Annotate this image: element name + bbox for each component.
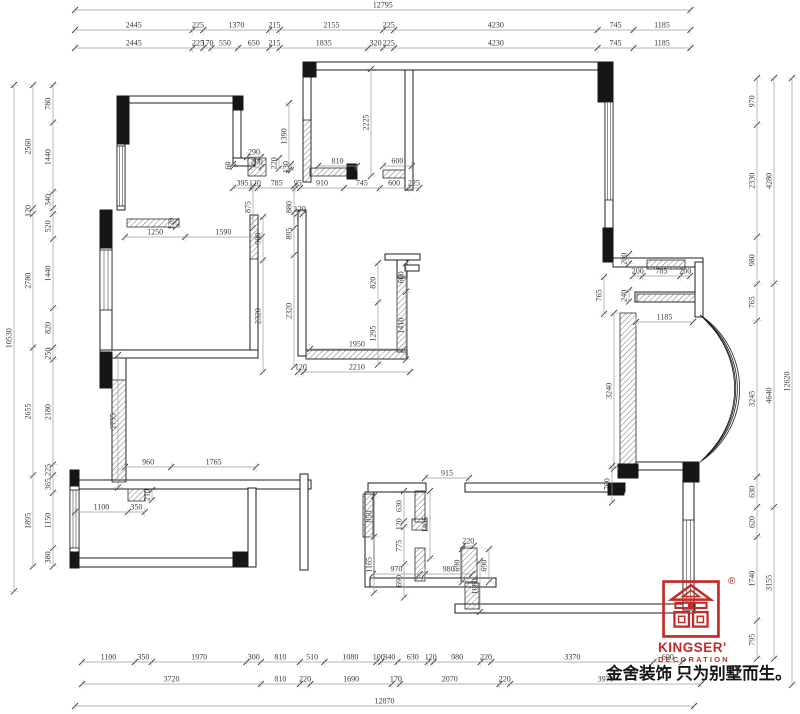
dim-label: 850	[365, 510, 374, 522]
dim-label: 910	[316, 179, 328, 188]
dim-label: 510	[306, 653, 318, 662]
dim-label: 765	[595, 289, 604, 301]
dim-label: 1100	[94, 503, 110, 512]
registered-trademark: ®	[728, 576, 735, 587]
dim-label: 60	[224, 161, 233, 169]
dim-label: 550	[219, 39, 231, 48]
dim-label: 1895	[24, 513, 33, 529]
dim-label: 200	[620, 253, 629, 265]
dim-label: 2330	[748, 173, 757, 189]
brand-name: KINGSER'	[658, 640, 744, 655]
dim-label: 240	[620, 290, 629, 302]
dim-label: 3370	[564, 653, 580, 662]
kingser-logo-mark: ®	[662, 580, 720, 638]
dim-label: 600	[397, 271, 406, 283]
dim-label: 765	[748, 296, 757, 308]
dim-label: 785	[655, 267, 667, 276]
dim-label: 745	[610, 39, 622, 48]
dim-label: 225	[192, 21, 204, 30]
dim-label: 875	[244, 201, 253, 213]
dim-label: 4280	[765, 173, 774, 189]
dim-label: 2320	[285, 303, 294, 319]
dim-label: 900	[254, 233, 263, 245]
dim-label: 3245	[748, 391, 757, 407]
dim-label: 120	[395, 518, 404, 530]
dim-label: 1440	[44, 266, 53, 282]
dim-label: 880	[285, 201, 294, 213]
dim-label: 2180	[44, 404, 53, 420]
dim-label: 1410	[397, 318, 406, 334]
dim-label: 12795	[373, 1, 393, 10]
dim-label: 12870	[375, 697, 395, 706]
dim-label: 1440	[44, 149, 53, 165]
dim-label: 1185	[654, 39, 670, 48]
dim-label: 200	[251, 158, 263, 167]
dim-label: 225	[383, 39, 395, 48]
dim-label: 690	[480, 560, 489, 572]
dim-label: 220	[462, 537, 474, 546]
dim-label: 690	[453, 560, 462, 572]
dim-label: 1835	[316, 39, 332, 48]
dim-label: 650	[248, 39, 260, 48]
dim-label: 3240	[605, 383, 614, 399]
dim-label: 225	[383, 21, 395, 30]
dim-label: 970	[390, 565, 402, 574]
dim-label: 340	[383, 653, 395, 662]
dim-label: 820	[44, 322, 53, 334]
dim-label: 820	[369, 277, 378, 289]
dim-label: 250	[44, 348, 53, 360]
dim-label: 220	[499, 675, 511, 684]
dim-label: 1060	[471, 578, 480, 594]
dim-label: 200	[632, 267, 644, 276]
dim-label: 220	[299, 675, 311, 684]
dim-label: 2655	[24, 403, 33, 419]
dim-label: 1150	[44, 513, 53, 529]
dim-label: 2755	[109, 413, 118, 429]
dim-label: 785	[271, 179, 283, 188]
dim-label: 10530	[5, 328, 14, 348]
dim-label: 810	[331, 157, 343, 166]
dim-label: 395	[236, 179, 248, 188]
dim-label: 2780	[24, 273, 33, 289]
dim-label: 220	[480, 653, 492, 662]
brand-slogan: 金舍装饰 只为别墅而生。	[606, 660, 800, 684]
dim-label: 980	[451, 653, 463, 662]
dim-label: 1100	[101, 653, 117, 662]
dim-label: 620	[748, 516, 757, 528]
dim-label: 3720	[163, 675, 179, 684]
dim-label: 2320	[254, 308, 263, 324]
dim-label: 600	[388, 179, 400, 188]
dim-label: 1690	[343, 675, 359, 684]
dim-label: 4230	[488, 39, 504, 48]
dim-label: 690	[395, 575, 404, 587]
dim-label: 225	[408, 179, 420, 188]
dim-label: 120	[24, 205, 33, 217]
dim-label: 200	[679, 267, 691, 276]
dim-label: 215	[268, 39, 280, 48]
dim-label: 895	[285, 228, 294, 240]
dim-label: 4230	[488, 21, 504, 30]
dim-label: 1950	[349, 340, 365, 349]
dim-label: 1295	[369, 326, 378, 342]
floor-plan-page: 1279524452251370215215522542307451185244…	[0, 0, 800, 714]
dim-label: 2225	[362, 115, 371, 131]
dim-label: 760	[603, 478, 612, 490]
pavilion-logo-icon	[662, 580, 720, 638]
dim-label: 320	[370, 39, 382, 48]
dim-label: 915	[441, 469, 453, 478]
dim-label: 220	[270, 157, 279, 169]
dim-label: 2210	[349, 363, 365, 372]
dim-label: 120	[167, 218, 176, 230]
dim-label: 1765	[206, 458, 222, 467]
dim-label: 745	[356, 179, 368, 188]
dim-label: 810	[274, 675, 286, 684]
dim-label: 1370	[228, 21, 244, 30]
dim-label: 170	[202, 39, 214, 48]
dim-label: 970	[748, 95, 757, 107]
dim-label: 120	[425, 653, 437, 662]
dim-label: 290	[248, 148, 260, 157]
dim-label: 1590	[215, 228, 231, 237]
dim-label: 980	[748, 254, 757, 266]
dim-label: 210	[143, 489, 152, 501]
dim-label: 300	[248, 653, 260, 662]
dim-label: 1970	[191, 653, 207, 662]
logo-block: ® KINGSER' DECORATION	[658, 580, 744, 664]
dim-label: 4640	[765, 387, 774, 403]
dim-label: 630	[407, 653, 419, 662]
dim-label: 350	[130, 503, 142, 512]
dim-label: 350	[137, 653, 149, 662]
dim-label: 520	[44, 220, 53, 232]
dim-label: 2445	[126, 21, 142, 30]
dim-label: 380	[44, 551, 53, 563]
dim-label: 630	[748, 486, 757, 498]
dim-label: 1080	[342, 653, 358, 662]
dim-label: 12620	[783, 372, 792, 392]
dim-label: 795	[748, 634, 757, 646]
dim-label: 1405	[421, 517, 430, 533]
dim-label: 2445	[126, 39, 142, 48]
dim-label: 1740	[748, 571, 757, 587]
dim-label: 170	[390, 675, 402, 684]
dim-label: 1185	[657, 313, 673, 322]
dim-label: 1390	[280, 128, 289, 144]
dim-label: 775	[395, 540, 404, 552]
dim-label: 340	[44, 194, 53, 206]
dim-label: 780	[44, 98, 53, 110]
dim-label: 1165	[365, 557, 374, 573]
bay-window-arc	[700, 315, 740, 462]
dim-label: 1185	[654, 21, 670, 30]
dim-label: 2560	[24, 139, 33, 155]
dim-label: 745	[610, 21, 622, 30]
dim-label: 2070	[442, 675, 458, 684]
dim-label: 810	[274, 653, 286, 662]
dim-label: 2155	[323, 21, 339, 30]
dim-label: 600	[391, 157, 403, 166]
dim-label: 630	[395, 500, 404, 512]
dim-label: 365	[44, 478, 53, 490]
dim-label: 3155	[765, 575, 774, 591]
dim-label: 960	[142, 458, 154, 467]
dim-label: 215	[268, 21, 280, 30]
dim-label: 1250	[147, 228, 163, 237]
dim-label: 225	[44, 464, 53, 476]
